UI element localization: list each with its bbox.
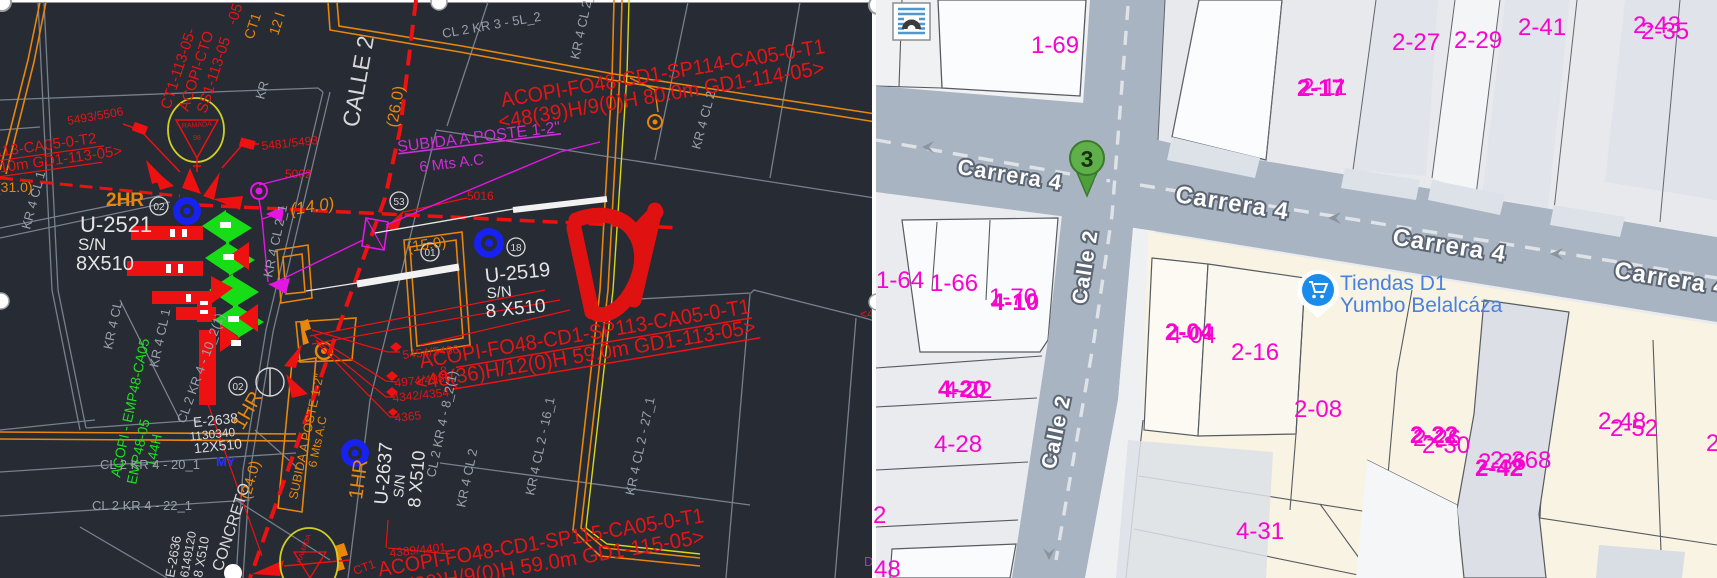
svg-text:Tiendas D1: Tiendas D1 — [1340, 272, 1447, 295]
svg-text:2: 2 — [873, 502, 886, 529]
svg-text:4-22: 4-22 — [944, 377, 992, 404]
svg-text:48: 48 — [874, 556, 901, 578]
svg-text:MY: MY — [216, 454, 236, 469]
svg-text:1-69: 1-69 — [1031, 32, 1079, 59]
svg-text:U-2521: U-2521 — [80, 212, 152, 237]
svg-text:4-10: 4-10 — [991, 289, 1039, 316]
svg-text:02: 02 — [153, 202, 165, 213]
svg-text:4-31: 4-31 — [1236, 518, 1284, 545]
svg-text:2-30: 2-30 — [1422, 432, 1470, 459]
svg-text:18: 18 — [510, 243, 522, 254]
svg-text:2-42: 2-42 — [1475, 455, 1523, 482]
svg-text:CL 2 KR 4 - 22_1: CL 2 KR 4 - 22_1 — [92, 498, 192, 513]
svg-text:2-11: 2-11 — [1301, 74, 1347, 101]
svg-text:2-: 2- — [1706, 430, 1717, 457]
svg-text:Yumbo Belalcáza: Yumbo Belalcáza — [1340, 294, 1503, 317]
svg-text:98: 98 — [193, 135, 201, 142]
svg-text:2HR: 2HR — [106, 190, 144, 211]
svg-text:1-64: 1-64 — [876, 267, 924, 294]
svg-text:1-66: 1-66 — [930, 270, 978, 297]
svg-text:4-04: 4-04 — [1168, 322, 1216, 349]
svg-text:53: 53 — [393, 197, 405, 208]
svg-text:2-27: 2-27 — [1392, 29, 1440, 56]
svg-text:3: 3 — [1081, 146, 1094, 172]
svg-text:S/N: S/N — [78, 235, 106, 254]
svg-text:2-35: 2-35 — [1641, 18, 1689, 45]
svg-text:2-29: 2-29 — [1454, 27, 1502, 54]
svg-text:2-16: 2-16 — [1231, 339, 1279, 366]
svg-text:5002: 5002 — [285, 167, 312, 181]
svg-text:2-08: 2-08 — [1294, 396, 1342, 423]
svg-text:5016: 5016 — [467, 189, 494, 203]
svg-text:4365: 4365 — [394, 408, 422, 425]
svg-text:8X510: 8X510 — [76, 253, 134, 275]
svg-text:4-28: 4-28 — [934, 431, 982, 458]
svg-text:2-41: 2-41 — [1518, 14, 1566, 41]
svg-text:02: 02 — [232, 382, 244, 393]
svg-text:2-52: 2-52 — [1610, 415, 1658, 442]
svg-text:CL 2 KR 4 - 20_1: CL 2 KR 4 - 20_1 — [100, 457, 200, 472]
